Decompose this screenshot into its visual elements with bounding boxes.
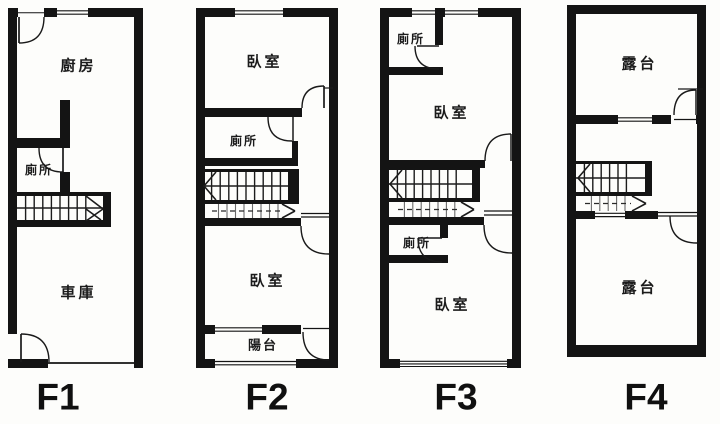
f3-bedroom-upper-door-arc — [485, 134, 511, 161]
f2-balcony-door-arc — [303, 332, 329, 360]
f2-stairs — [203, 172, 295, 218]
f4-room-label-terrace-lower: 露台 — [618, 281, 657, 296]
f1-side-door-arc — [21, 334, 49, 362]
f3-toilet-upper-door-arc — [415, 46, 439, 69]
f3-stair-hall-door-arc — [484, 225, 512, 253]
f4-stairs — [576, 164, 646, 211]
f4-terrace-lower-door-arc — [670, 216, 697, 243]
f2-toilet-door-arc — [268, 117, 293, 141]
floorplan-canvas: 廚房 廁所 車庫 臥室 廁所 臥室 陽台 廁所 臥室 廁所 臥室 露台 露台 F… — [0, 0, 720, 424]
f3-room-label-toilet-lower: 廁所 — [401, 237, 431, 249]
f2-room-label-toilet: 廁所 — [228, 135, 258, 147]
f3-room-label-toilet-upper: 廁所 — [395, 33, 425, 45]
floorplan-drawing — [0, 0, 720, 424]
f4-floor-label: F4 — [624, 379, 667, 416]
f3-door-arcs — [415, 46, 512, 262]
f2-room-label-bedroom-upper: 臥室 — [243, 55, 282, 70]
f3-room-label-bedroom-lower: 臥室 — [431, 298, 470, 313]
f4-room-label-terrace-upper: 露台 — [618, 57, 657, 72]
f1-stairs — [17, 196, 103, 221]
f3-floor-label: F3 — [434, 379, 477, 416]
f3-walls — [380, 8, 521, 368]
f1-door-arcs — [19, 17, 63, 362]
f3-stairs — [389, 170, 474, 217]
f2-floor-label: F2 — [245, 379, 288, 416]
f2-room-label-bedroom-lower: 臥室 — [246, 274, 285, 289]
f1-room-label-garage: 車庫 — [57, 286, 96, 301]
f2-stair-hall-door-arc — [301, 226, 329, 254]
f3-unit — [380, 8, 521, 368]
f2-bedroom-upper-door-arc — [302, 86, 333, 108]
f1-room-label-kitchen: 廚房 — [57, 59, 96, 74]
f1-floor-label: F1 — [36, 379, 79, 416]
f2-room-label-balcony: 陽台 — [246, 340, 278, 353]
f1-room-label-toilet: 廁所 — [23, 164, 53, 176]
f1-entry-door-arc — [19, 17, 44, 43]
f3-room-label-bedroom-upper: 臥室 — [430, 106, 469, 121]
